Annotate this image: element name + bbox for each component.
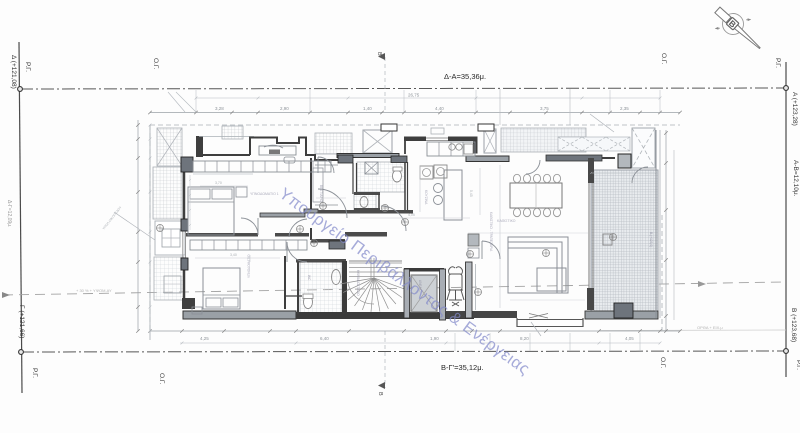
svg-text:Ο.Γ.: Ο.Γ. (152, 58, 159, 70)
svg-text:Ρ.Γ.: Ρ.Γ. (24, 62, 31, 72)
svg-text:8,20: 8,20 (520, 336, 529, 341)
svg-text:1,90: 1,90 (430, 336, 439, 341)
svg-text:Ρ.Γ.: Ρ.Γ. (31, 368, 38, 378)
svg-text:2,90: 2,90 (280, 106, 289, 111)
svg-text:3,28: 3,28 (215, 106, 224, 111)
svg-text:Β-(+123,0): Β-(+123,0) (649, 232, 653, 247)
svg-text:Δ-Α=35,36μ.: Δ-Α=35,36μ. (444, 72, 486, 81)
svg-text:5,45: 5,45 (469, 190, 473, 197)
svg-text:Γ (+121,66): Γ (+121,66) (18, 305, 25, 338)
svg-text:1,40: 1,40 (363, 106, 372, 111)
svg-text:6,40: 6,40 (320, 336, 329, 341)
svg-text:+ 30 % + ΥΨΟΜ.ΑΥ: + 30 % + ΥΨΟΜ.ΑΥ (76, 288, 112, 293)
svg-text:ΚΑΘΙΣΤΙΚΟ: ΚΑΘΙΣΤΙΚΟ (497, 219, 516, 223)
svg-text:Δ-Γ=12,09μ.: Δ-Γ=12,09μ. (6, 200, 12, 227)
svg-text:Α (+123,28): Α (+123,28) (791, 92, 798, 126)
svg-text:4,05: 4,05 (408, 213, 415, 217)
svg-text:3,40: 3,40 (230, 253, 237, 257)
svg-text:Ρ.Γ.: Ρ.Γ. (774, 58, 781, 68)
svg-text:Ο.Γ.: Ο.Γ. (660, 53, 667, 65)
svg-text:Β-Γ'=35,12μ.: Β-Γ'=35,12μ. (441, 363, 484, 372)
svg-text:ΟΡΘΑ + ΕΙΧ.μ: ΟΡΘΑ + ΕΙΧ.μ (697, 325, 723, 330)
svg-text:26,75: 26,75 (408, 93, 420, 98)
svg-text:Β: Β (376, 52, 382, 56)
svg-text:Ρ.Γ.: Ρ.Γ. (795, 360, 800, 370)
svg-text:4,25: 4,25 (200, 336, 209, 341)
svg-text:ΥΠΝΟΔΩΜΑΤΙΟ 1: ΥΠΝΟΔΩΜΑΤΙΟ 1 (250, 192, 279, 196)
svg-text:4,05: 4,05 (625, 336, 634, 341)
svg-text:Β (+123,68): Β (+123,68) (790, 308, 797, 342)
svg-text:Ο.Γ.: Ο.Γ. (158, 373, 165, 385)
svg-text:ΚΛΙΜΑΚΟΣΤΑΣΙΟ: ΚΛΙΜΑΚΟΣΤΑΣΙΟ (356, 270, 360, 296)
svg-text:WC: WC (307, 275, 311, 281)
svg-text:ΚΑΘΙΣΤΙΚΟ - ΤΡΑΠΕΖΑΡΙΑ: ΚΑΘΙΣΤΙΚΟ - ΤΡΑΠΕΖΑΡΙΑ (489, 212, 493, 252)
svg-text:Ο.Γ.: Ο.Γ. (659, 357, 666, 369)
svg-text:Β: Β (377, 392, 383, 396)
svg-text:3,70: 3,70 (215, 181, 222, 185)
svg-text:ΥΠΝΟΔΩΜΑΤΙΟ: ΥΠΝΟΔΩΜΑΤΙΟ (247, 254, 251, 278)
svg-text:ΒΕΣΤΙΑΡΙΟ: ΒΕΣΤΙΑΡΙΟ (319, 185, 323, 203)
svg-text:2,35: 2,35 (620, 106, 629, 111)
svg-text:4,40: 4,40 (435, 106, 444, 111)
svg-text:ΚΟΥΖΙΝΑ: ΚΟΥΖΙΝΑ (424, 190, 428, 205)
svg-text:Α-Β=12,10μ.: Α-Β=12,10μ. (792, 160, 799, 197)
svg-text:Δ (+121,08): Δ (+121,08) (10, 55, 17, 89)
svg-text:3,75: 3,75 (540, 106, 549, 111)
